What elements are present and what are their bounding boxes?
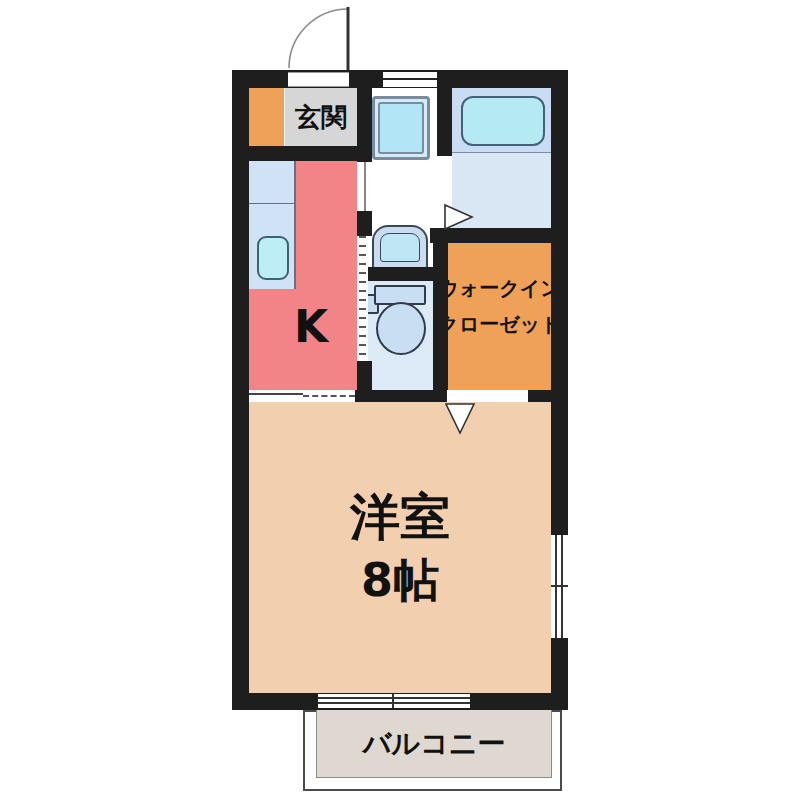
toilet-accordion-door xyxy=(357,236,368,361)
balcony-sliding-door xyxy=(318,694,470,708)
walk-in-closet-label-line1: ウォークイン xyxy=(438,270,560,306)
bathroom-door-marker xyxy=(443,203,475,231)
washbasin-bowl xyxy=(380,233,420,262)
balcony-sliding-door-pane2 xyxy=(318,702,470,704)
kitchen-sink xyxy=(257,236,289,280)
washroom-window xyxy=(383,72,437,87)
kitchen-room-sliding-door xyxy=(249,390,303,402)
toilet-bowl xyxy=(376,302,426,355)
western-room-window-pane1 xyxy=(555,535,557,638)
wall-closet-left xyxy=(433,230,448,402)
kitchen-room-door-track xyxy=(303,390,355,402)
washing-machine-pan-inner xyxy=(378,102,424,154)
washroom-sliding-door xyxy=(357,162,372,211)
kitchen-counter-divider xyxy=(249,203,295,204)
wall-middle-upper xyxy=(357,70,372,162)
walk-in-closet-label: ウォークイン クローゼット xyxy=(448,268,551,344)
wall-midrow-bottom-right xyxy=(528,390,551,402)
western-room-window xyxy=(551,535,568,638)
kitchen-label: K xyxy=(283,298,339,354)
closet-door-opening xyxy=(447,390,528,402)
kitchen-room-door-track-dashes xyxy=(303,395,355,397)
shoe-storage-area xyxy=(249,87,284,147)
balcony-label: バルコニー xyxy=(316,716,552,772)
wall-entrance-bottom xyxy=(240,146,372,161)
western-room-label: 洋室 8帖 xyxy=(249,468,551,628)
floor-plan: 玄関 K ウォークイン クローゼット 洋室 8帖 バルコニー xyxy=(0,0,800,800)
western-room-name: 洋室 xyxy=(350,485,450,549)
western-room-window-latch xyxy=(551,585,568,587)
balcony-sliding-door-pane1 xyxy=(318,697,470,699)
balcony-sliding-door-latch xyxy=(392,694,394,708)
western-room-size: 8帖 xyxy=(361,549,439,611)
entrance-door-swing-arc xyxy=(284,4,356,72)
wall-midrow-bottom-left xyxy=(355,390,447,402)
entrance-label: 玄関 xyxy=(285,87,357,147)
entrance-door-opening xyxy=(288,72,349,87)
washroom-sliding-door-pane xyxy=(364,162,366,211)
wall-middle-block1 xyxy=(357,211,372,236)
wall-left xyxy=(232,70,249,710)
wall-bathroom-left xyxy=(437,70,452,156)
walk-in-closet-label-line2: クローゼット xyxy=(438,306,560,342)
closet-door-marker xyxy=(444,402,476,436)
kitchen-room-sliding-door-pane xyxy=(249,393,303,395)
wall-washroom-toilet xyxy=(364,267,437,281)
bathtub xyxy=(461,96,545,146)
washroom-window-pane xyxy=(383,78,437,80)
western-room-window-pane2 xyxy=(561,535,563,638)
